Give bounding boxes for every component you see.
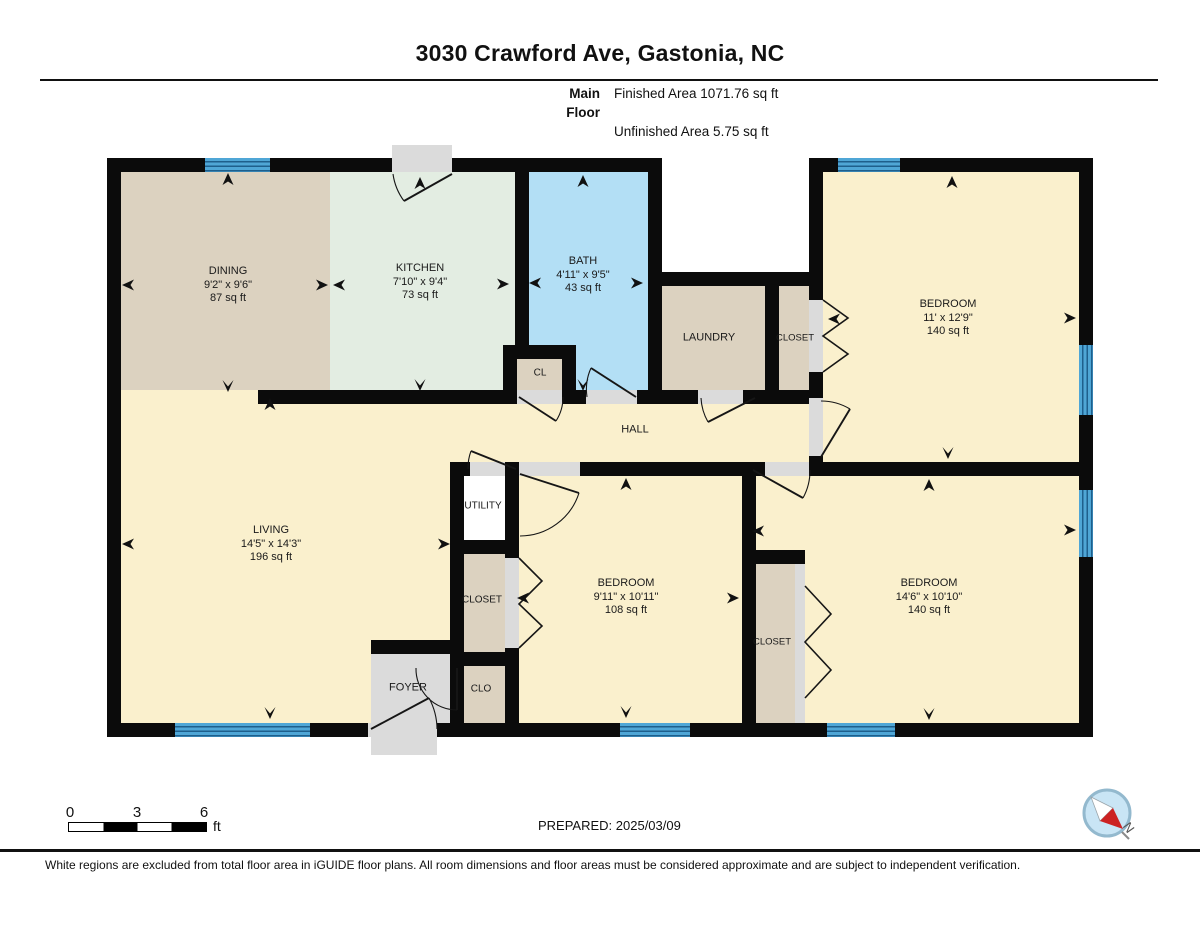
- window: [205, 158, 270, 172]
- room-label-closet-se: CLOSET: [753, 635, 791, 649]
- unfinished-area: Unfinished Area 5.75 sq ft: [614, 122, 778, 141]
- wall: [812, 462, 1093, 476]
- window: [1079, 490, 1093, 557]
- room-dims: 4'11" x 9'5": [556, 268, 609, 282]
- scale-tick-6: 6: [197, 804, 211, 821]
- disclaimer-text: White regions are excluded from total fl…: [45, 858, 1165, 872]
- scale-bar: [68, 822, 207, 832]
- wall: [258, 390, 515, 404]
- wall: [765, 286, 779, 404]
- wall: [1079, 158, 1093, 737]
- wall: [637, 390, 662, 404]
- compass: N: [1080, 788, 1144, 852]
- room-area: 108 sq ft: [594, 604, 659, 618]
- wall: [809, 372, 823, 398]
- room-name: DINING: [204, 265, 252, 279]
- room-dims: 14'6" x 10'10": [896, 590, 962, 604]
- door-threshold: [517, 390, 562, 404]
- room-label-bedroom-se: BEDROOM 14'6" x 10'10" 140 sq ft: [896, 577, 962, 618]
- room-label-clo: CLO: [471, 682, 492, 696]
- room-name: BEDROOM: [896, 577, 962, 591]
- floor-label: Main Floor: [534, 84, 600, 122]
- room-name: FOYER: [389, 681, 427, 695]
- room-area: 87 sq ft: [204, 292, 252, 306]
- room-label-foyer: FOYER: [389, 681, 427, 695]
- room-name: LIVING: [241, 524, 301, 538]
- wall: [648, 272, 823, 286]
- scale-tick-3: 3: [130, 804, 144, 821]
- wall: [576, 390, 586, 404]
- room-name: BEDROOM: [594, 577, 659, 591]
- room-name: CLOSET: [776, 331, 814, 345]
- room-label-closet-mid: CLOSET: [462, 593, 502, 607]
- scale-unit: ft: [213, 818, 221, 834]
- room-area: 43 sq ft: [556, 282, 609, 296]
- prepared-date: PREPARED: 2025/03/09: [538, 818, 681, 833]
- room-label-closet-top: CLOSET: [776, 331, 814, 345]
- wall: [809, 172, 823, 300]
- wall: [779, 390, 809, 404]
- wall: [743, 390, 765, 404]
- front-door-opening: [368, 723, 437, 737]
- room-name: LAUNDRY: [683, 331, 735, 345]
- room-label-bath: BATH 4'11" x 9'5" 43 sq ft: [556, 255, 609, 296]
- room-dims: 9'2" x 9'6": [204, 278, 252, 292]
- wall: [562, 359, 576, 404]
- door-threshold: [698, 390, 743, 404]
- room-dims: 9'11" x 10'11": [594, 590, 659, 604]
- room-label-bedroom-ne: BEDROOM 11' x 12'9" 140 sq ft: [920, 298, 977, 339]
- room-name: KITCHEN: [393, 262, 447, 276]
- room-label-utility: UTILITY: [464, 499, 501, 513]
- footer-divider: [0, 849, 1200, 852]
- wall: [503, 345, 576, 359]
- room-name: BATH: [556, 255, 609, 269]
- window: [620, 723, 690, 737]
- room-name: BEDROOM: [920, 298, 977, 312]
- room-dims: 7'10" x 9'4": [393, 275, 447, 289]
- window: [827, 723, 895, 737]
- exterior-notch: [662, 172, 809, 272]
- wall: [580, 462, 765, 476]
- wall: [450, 540, 519, 554]
- room-label-bedroom-mid: BEDROOM 9'11" x 10'11" 108 sq ft: [594, 577, 659, 618]
- wall: [450, 652, 519, 666]
- room-area: 196 sq ft: [241, 551, 301, 565]
- entry-step: [371, 737, 437, 755]
- finished-area: Finished Area 1071.76 sq ft: [614, 84, 778, 122]
- room-area: 140 sq ft: [920, 325, 977, 339]
- room-label-hall: HALL: [621, 423, 649, 437]
- wall: [107, 158, 121, 737]
- wall: [371, 640, 464, 654]
- wall: [437, 723, 1093, 737]
- wall: [742, 471, 756, 723]
- door-threshold: [586, 390, 637, 404]
- window: [838, 158, 900, 172]
- wall: [515, 158, 529, 345]
- closet-se-door-track: [795, 564, 805, 723]
- wall: [452, 158, 648, 172]
- kitchen-door-landing: [392, 145, 452, 172]
- spacer: [534, 122, 600, 141]
- room-name: CL: [534, 366, 547, 380]
- floor-plan: DINING 9'2" x 9'6" 87 sq ft KITCHEN 7'10…: [107, 158, 1093, 737]
- room-name: CLO: [471, 682, 492, 696]
- window: [1079, 345, 1093, 415]
- room-label-living: LIVING 14'5" x 14'3" 196 sq ft: [241, 524, 301, 565]
- wall: [505, 462, 519, 476]
- room-area: 73 sq ft: [393, 289, 447, 303]
- scale-tick-0: 0: [63, 804, 77, 821]
- door-threshold: [519, 462, 580, 476]
- floor-summary: Main Floor Finished Area 1071.76 sq ft U…: [534, 84, 778, 141]
- page-title: 3030 Crawford Ave, Gastonia, NC: [0, 40, 1200, 67]
- room-label-laundry: LAUNDRY: [683, 331, 735, 345]
- wall: [742, 550, 805, 564]
- room-name: CLOSET: [462, 593, 502, 607]
- window: [175, 723, 310, 737]
- room-name: CLOSET: [753, 635, 791, 649]
- room-label-dining: DINING 9'2" x 9'6" 87 sq ft: [204, 265, 252, 306]
- room-name: HALL: [621, 423, 649, 437]
- room-label-cl: CL: [534, 366, 547, 380]
- room-area: 140 sq ft: [896, 604, 962, 618]
- header-divider: [40, 79, 1158, 81]
- door-threshold: [765, 462, 812, 476]
- door-threshold: [505, 558, 519, 648]
- compass-icon: [1080, 788, 1136, 844]
- room-dims: 14'5" x 14'3": [241, 537, 301, 551]
- wall: [662, 390, 698, 404]
- room-dims: 11' x 12'9": [920, 311, 977, 325]
- room-label-kitchen: KITCHEN 7'10" x 9'4" 73 sq ft: [393, 262, 447, 303]
- room-name: UTILITY: [464, 499, 501, 513]
- door-threshold: [809, 398, 823, 456]
